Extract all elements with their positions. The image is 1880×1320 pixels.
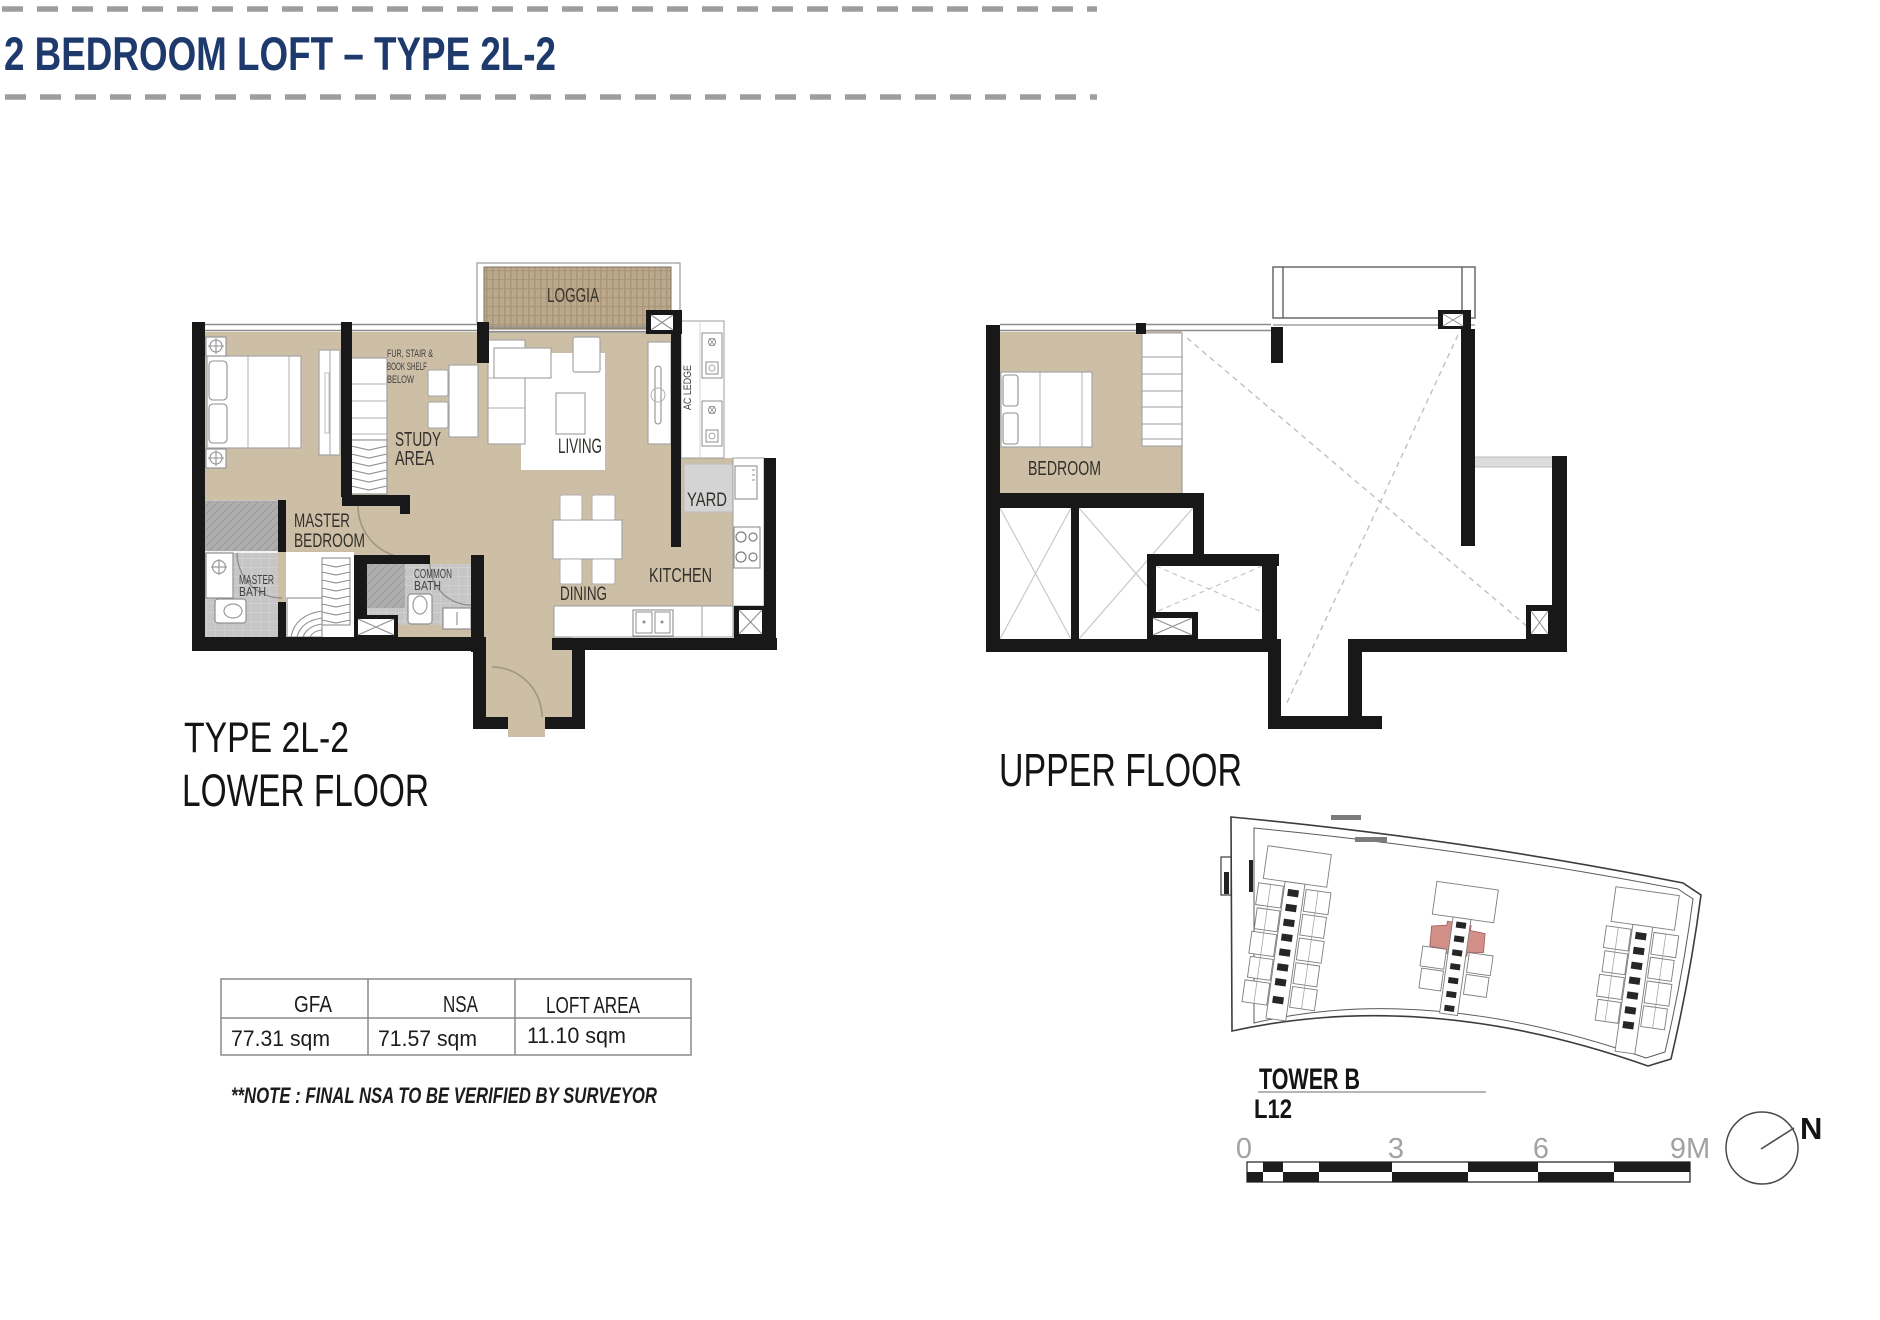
svg-text:**NOTE : FINAL NSA TO BE VERIF: **NOTE : FINAL NSA TO BE VERIFIED BY SUR… [231,1083,657,1108]
svg-text:UPPER FLOOR: UPPER FLOOR [999,744,1242,796]
svg-text:BEDROOM: BEDROOM [294,531,365,552]
svg-text:FUR, STAIR &: FUR, STAIR & [387,348,433,360]
svg-text:AC LEDGE: AC LEDGE [682,365,694,410]
svg-text:77.31 sqm: 77.31 sqm [231,1026,330,1051]
svg-text:BATH: BATH [414,579,441,593]
svg-text:BOOK SHELF: BOOK SHELF [387,361,427,373]
svg-text:71.57 sqm: 71.57 sqm [378,1026,477,1051]
svg-text:LOWER FLOOR: LOWER FLOOR [182,765,429,816]
svg-text:YARD: YARD [687,490,727,511]
svg-text:LOFT AREA: LOFT AREA [546,992,640,1018]
svg-text:TYPE 2L-2: TYPE 2L-2 [184,714,349,762]
svg-text:LOGGIA: LOGGIA [547,285,599,307]
svg-text:DINING: DINING [560,584,607,605]
svg-text:BATH: BATH [239,584,266,599]
svg-text:TOWER B: TOWER B [1259,1063,1360,1096]
svg-text:BEDROOM: BEDROOM [1028,458,1101,480]
svg-text:NSA: NSA [443,991,478,1017]
svg-text:2 BEDROOM LOFT – TYPE 2L-2: 2 BEDROOM LOFT – TYPE 2L-2 [4,27,556,80]
svg-text:LIVING: LIVING [558,435,602,458]
svg-text:KITCHEN: KITCHEN [649,565,712,587]
svg-text:0: 0 [1236,1133,1252,1165]
svg-text:N: N [1800,1111,1822,1146]
svg-text:GFA: GFA [294,991,333,1017]
svg-text:11.10 sqm: 11.10 sqm [527,1023,626,1048]
svg-text:9M: 9M [1670,1133,1710,1165]
svg-text:3: 3 [1388,1133,1404,1165]
svg-text:AREA: AREA [395,448,434,470]
svg-text:L12: L12 [1254,1094,1292,1124]
svg-text:6: 6 [1533,1133,1549,1165]
svg-text:BELOW: BELOW [387,374,414,386]
svg-text:MASTER: MASTER [294,511,350,532]
